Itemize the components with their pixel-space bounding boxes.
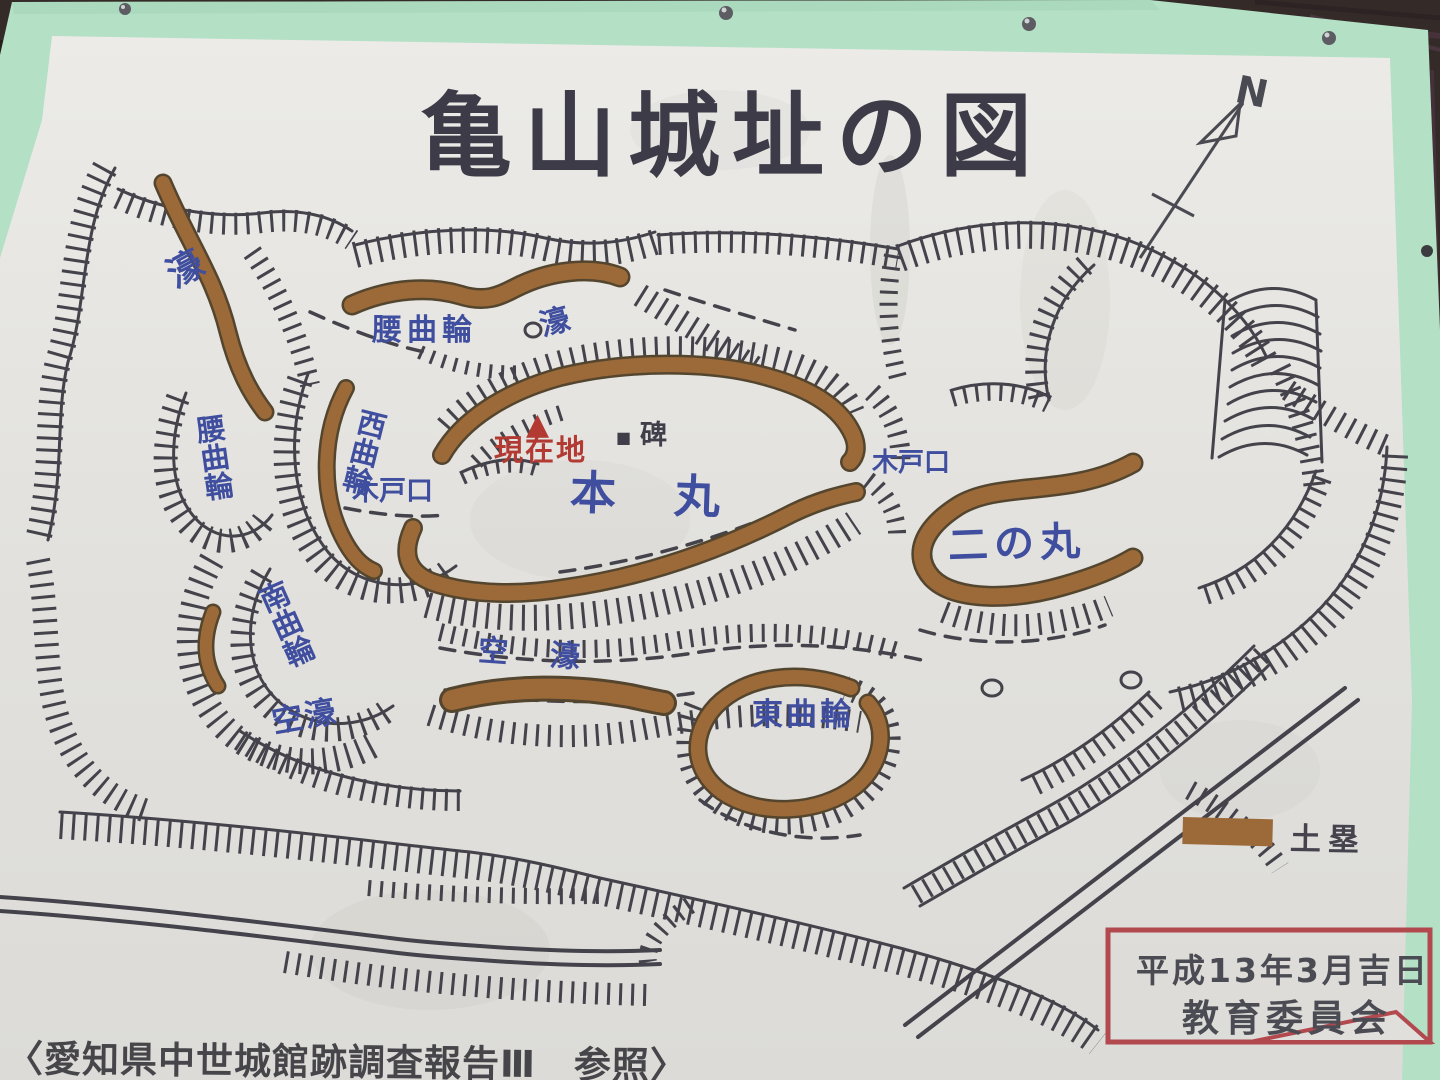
label-honmaru: 本 丸 [569, 469, 727, 520]
map-title: 亀山城址の図 [352, 62, 1112, 195]
label-current-location: 現在地 [494, 436, 587, 465]
legend-swatch [1182, 817, 1273, 846]
date-box: 平成13年3月吉日 教育委員会 [1108, 930, 1430, 1042]
label-ninomaru: 二の丸 [947, 522, 1086, 567]
label-koshi-kuruwa-top: 腰曲輪 [372, 316, 477, 346]
label-karabori-center: 空 濠 [477, 636, 587, 673]
label-monument: 碑 [640, 422, 667, 449]
legend-dorui-label: 土塁 [1290, 813, 1367, 859]
reference-caption: 〈愛知県中世城館跡調査報告Ⅲ 参照〉 [6, 1028, 689, 1080]
label-higashi-kuruwa: 東曲輪 [752, 700, 854, 731]
board-of-education-line: 教育委員会 [1182, 988, 1392, 1042]
sign-photo: 亀山城址の図 N 濠 腰曲輪 濠 腰曲輪 西曲輪 木戸口 ▲ 現在地 ■ 碑 本… [0, 0, 1440, 1080]
monument-marker: ■ [616, 430, 631, 446]
date-line: 平成13年3月吉日 [1136, 944, 1430, 992]
label-kido-guchi-east: 木戸口 [872, 450, 950, 476]
label-kido-guchi-west: 木戸口 [352, 478, 433, 505]
